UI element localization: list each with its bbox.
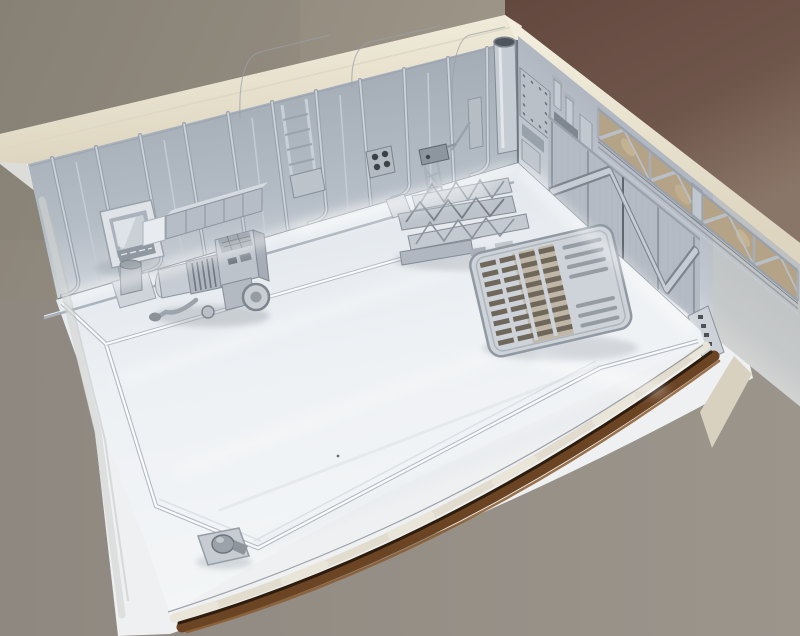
fixture-dome — [212, 535, 234, 553]
cart-front-wheel — [202, 306, 214, 318]
photo-canvas: Photograph of an unpainted scale model d… — [0, 0, 800, 636]
vent-block — [366, 146, 395, 178]
dome-highlight — [216, 537, 224, 543]
floor-speck — [337, 455, 340, 458]
tow-hitch — [149, 313, 161, 322]
wheel-hub — [251, 292, 262, 303]
corner-seam — [517, 40, 518, 163]
diorama-photo: Photograph of an unpainted scale model d… — [0, 0, 800, 636]
barrel-top — [120, 260, 141, 269]
